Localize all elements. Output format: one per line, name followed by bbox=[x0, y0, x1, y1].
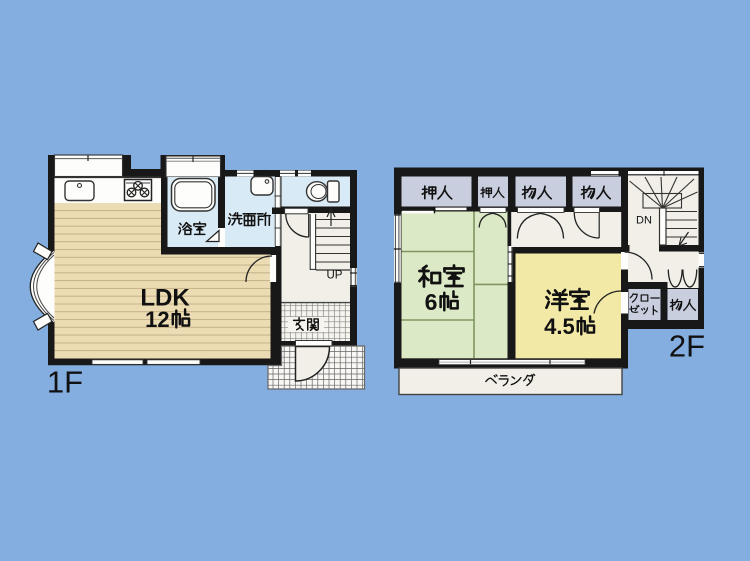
svg-text:UP: UP bbox=[327, 270, 343, 282]
svg-text:2F: 2F bbox=[669, 329, 705, 364]
svg-text:6: 6 bbox=[425, 289, 438, 315]
svg-text:4.5: 4.5 bbox=[544, 314, 575, 339]
svg-text:12: 12 bbox=[145, 307, 169, 332]
svg-text:DN: DN bbox=[636, 215, 652, 227]
svg-text:1F: 1F bbox=[47, 365, 83, 400]
